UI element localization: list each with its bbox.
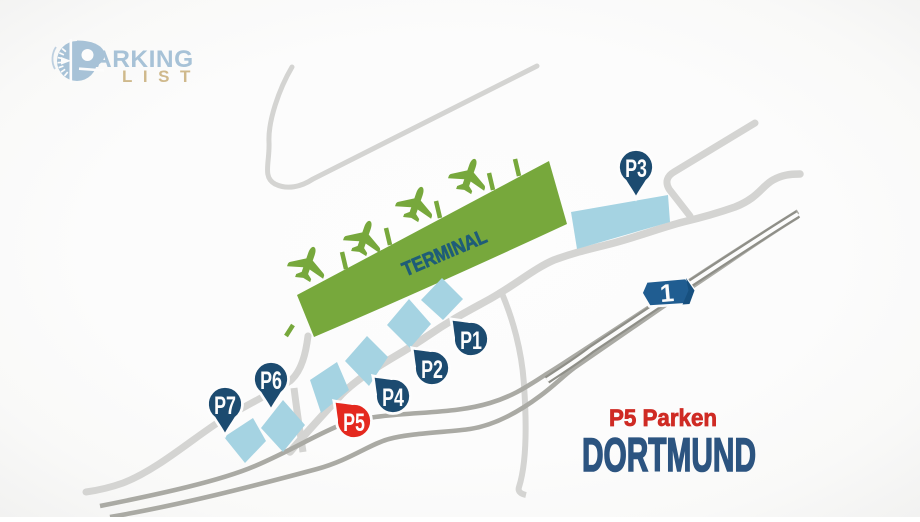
svg-text:DORTMUND: DORTMUND (582, 428, 756, 481)
svg-text:P4: P4 (382, 383, 404, 412)
svg-text:P7: P7 (214, 391, 236, 420)
svg-text:P3: P3 (625, 154, 647, 183)
svg-text:LIST: LIST (122, 67, 201, 86)
svg-text:P2: P2 (421, 355, 443, 384)
svg-text:P5: P5 (343, 408, 365, 437)
svg-text:1: 1 (659, 279, 675, 308)
svg-text:P1: P1 (460, 326, 482, 355)
svg-text:P6: P6 (260, 366, 282, 395)
